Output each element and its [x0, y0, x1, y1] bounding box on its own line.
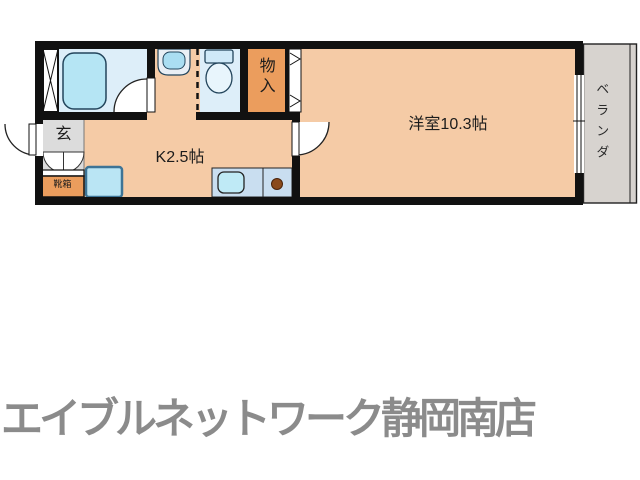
entrance-label: 玄	[43, 126, 84, 144]
storage-folding-doors-icon	[289, 49, 301, 112]
stove-burner-icon	[272, 179, 283, 190]
veranda-window-icon	[573, 75, 585, 173]
toilet-icon	[205, 50, 233, 93]
entrance-door-icon	[5, 124, 43, 156]
kitchen-label: K2.5帖	[138, 149, 222, 167]
pipe-space-icon	[43, 49, 58, 112]
storage-label: 物入	[256, 57, 274, 97]
entrance-step	[41, 170, 84, 176]
veranda-label: ベランダ	[594, 82, 608, 166]
western-room-label: 洋室10.3帖	[383, 116, 513, 134]
bathtub-icon	[63, 53, 106, 109]
washing-machine-space-icon	[86, 167, 122, 197]
kitchen-sink-icon	[218, 172, 244, 193]
store-name: エイブルネットワーク静岡南店	[1, 396, 533, 442]
shoebox-label: 靴箱	[41, 180, 84, 190]
floorplan-flyer: 玄 靴箱 K2.5帖 物入 洋室10.3帖 ベランダ エイブルネットワーク静岡南…	[0, 0, 640, 480]
veranda-area	[584, 44, 637, 203]
washbasin-icon	[158, 49, 190, 75]
kitchen-counter	[212, 168, 292, 197]
